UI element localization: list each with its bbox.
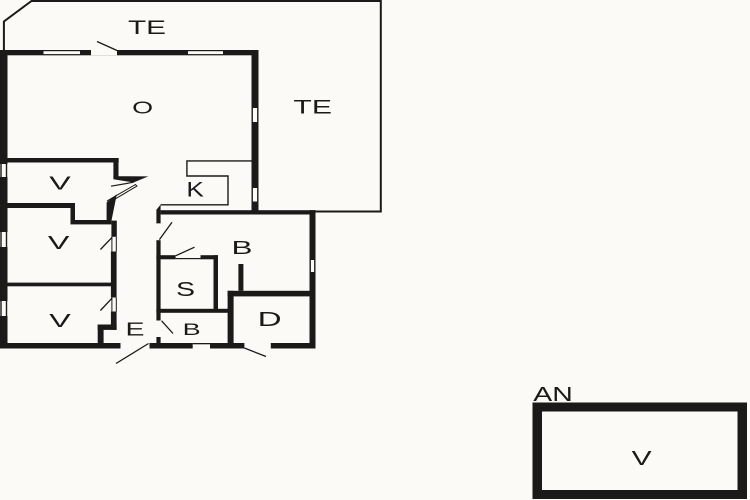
svg-text:K: K xyxy=(186,179,204,202)
svg-text:V: V xyxy=(49,173,71,193)
svg-text:TE: TE xyxy=(128,18,166,39)
svg-text:S: S xyxy=(176,278,195,301)
svg-text:V: V xyxy=(49,311,71,331)
svg-text:E: E xyxy=(126,320,145,340)
svg-text:V: V xyxy=(48,233,70,253)
svg-text:B: B xyxy=(232,238,253,258)
svg-text:B: B xyxy=(183,320,201,339)
svg-text:O: O xyxy=(132,97,153,117)
svg-text:V: V xyxy=(632,447,652,470)
svg-text:TE: TE xyxy=(293,97,332,118)
svg-text:D: D xyxy=(258,308,282,331)
